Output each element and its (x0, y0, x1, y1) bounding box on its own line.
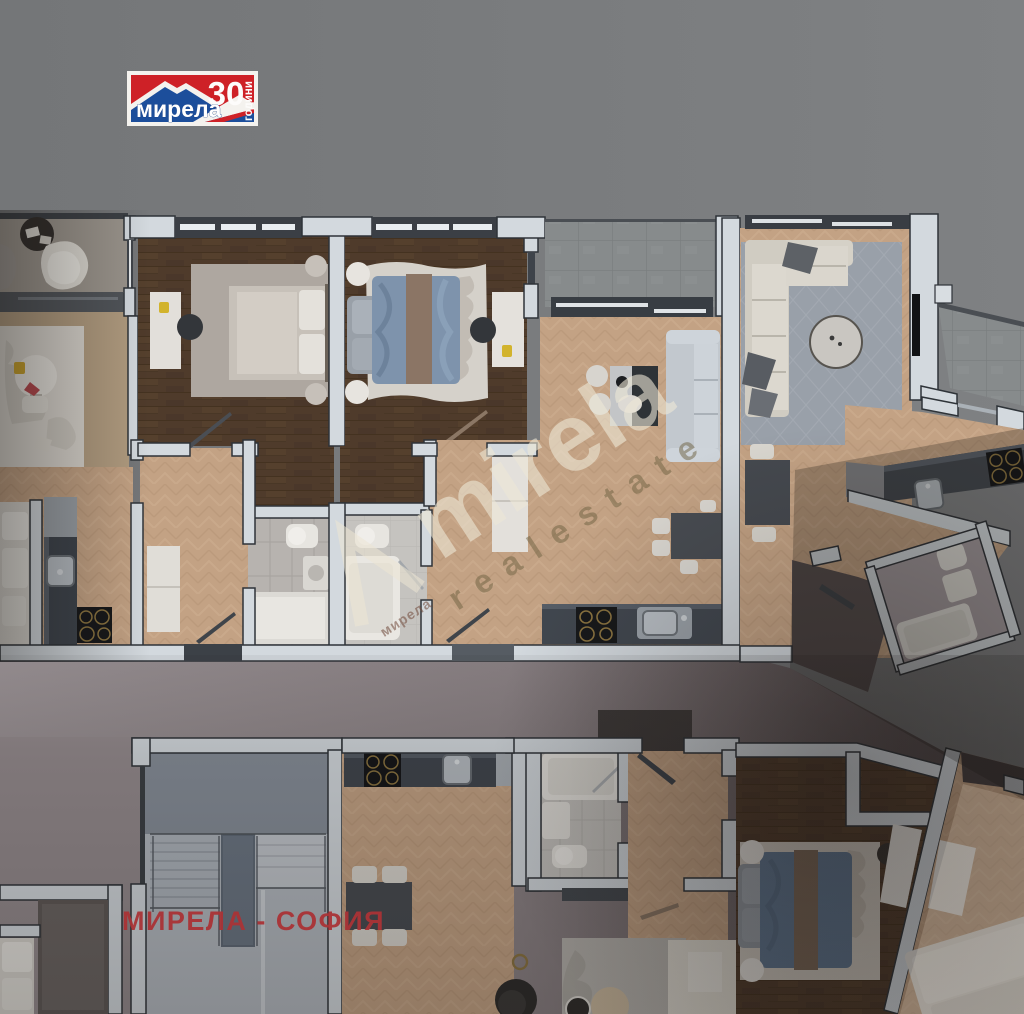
svg-text:МИРЕЛА - СОФИЯ: МИРЕЛА - СОФИЯ (122, 906, 385, 936)
svg-text:години: години (243, 81, 255, 121)
svg-text:мирела: мирела (136, 96, 222, 122)
